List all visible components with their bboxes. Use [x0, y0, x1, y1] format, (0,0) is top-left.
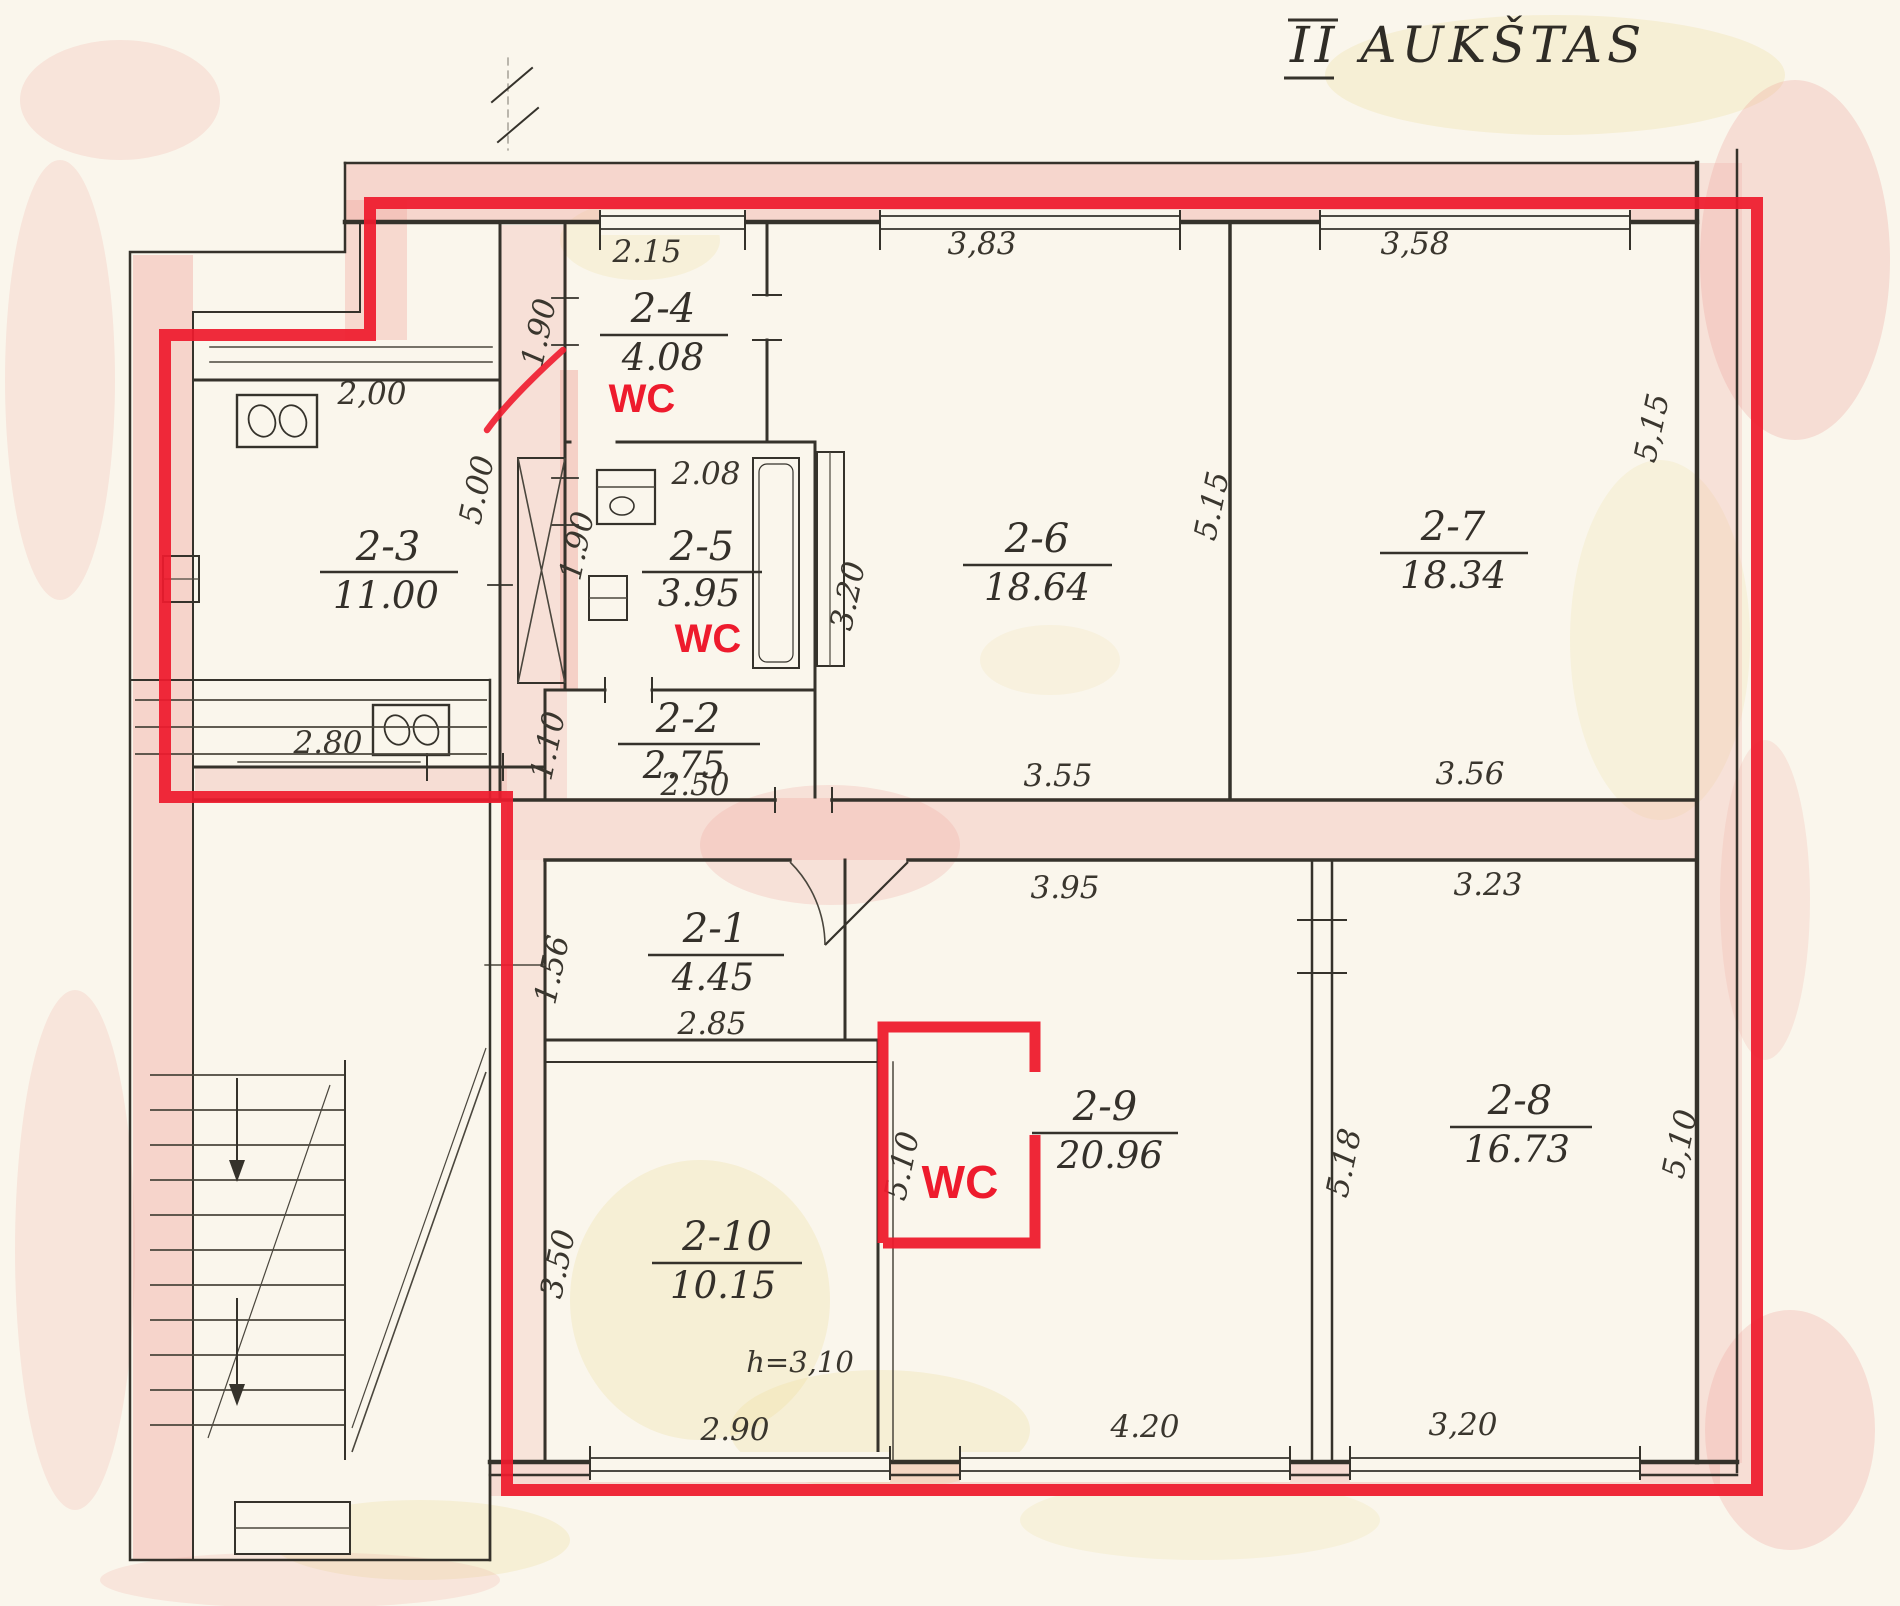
- bath-outer: [753, 458, 799, 668]
- bath-inner: [759, 464, 793, 662]
- room-id: 2-6: [1004, 516, 1069, 562]
- dim-below-2-3: 2.80: [292, 725, 362, 761]
- stair-stringer: [352, 1072, 486, 1452]
- dim-left-2-3: 5.00: [452, 452, 502, 527]
- room-label-2-6: 2-6 18.64: [963, 516, 1112, 609]
- dim-kitchen: 2,00: [336, 376, 406, 412]
- wash-blotch: [700, 785, 960, 905]
- wash-blotch: [1720, 740, 1810, 1060]
- page-title: II AUKŠTAS: [1289, 15, 1646, 74]
- room-label-2-5: 2-5 3.95: [642, 524, 762, 615]
- dim-below-2-1: 2.85: [676, 1006, 746, 1042]
- room-label-2-7: 2-7 18.34: [1380, 504, 1528, 597]
- wash-corridor-main: [507, 798, 1699, 860]
- floorplan-drawing: 2.15 1.90 2,00 5.00 2.08 1.90 3,83 3.20 …: [0, 0, 1900, 1606]
- wc-label-2-9: WC: [922, 1156, 999, 1208]
- wall-break-tick: [492, 68, 532, 102]
- wall-step-inner: [193, 225, 360, 312]
- scanned-floorplan-page: 2.15 1.90 2,00 5.00 2.08 1.90 3,83 3.20 …: [0, 0, 1900, 1606]
- room-id: 2-7: [1420, 504, 1486, 550]
- room-id: 2-2: [655, 696, 720, 742]
- dim-top-2-9: 3.95: [1030, 870, 1099, 906]
- room-area: 11.00: [333, 574, 439, 617]
- window-gap: [1350, 1452, 1640, 1482]
- dim-win-2-4: 2.15: [611, 234, 681, 270]
- dim-height-note: h=3,10: [746, 1345, 854, 1379]
- room-id: 2-1: [682, 906, 747, 952]
- window-gap: [1320, 210, 1630, 235]
- windows: [235, 210, 1640, 1554]
- stove-burner: [275, 402, 310, 441]
- room-area: 3.95: [658, 572, 740, 615]
- dim-below-2-7: 3.56: [1435, 756, 1504, 792]
- room-label-2-1: 2-1 4.45: [648, 906, 784, 999]
- room-id: 2-4: [630, 286, 695, 332]
- room-label-2-8: 2-8 16.73: [1450, 1078, 1592, 1171]
- dim-below-2-6: 3.55: [1023, 758, 1092, 794]
- dim-top-2-5: 2.08: [670, 456, 740, 492]
- wash-blotch: [15, 990, 135, 1510]
- room-label-2-2: 2-2 2.75: [618, 696, 760, 787]
- room-id: 2-3: [355, 524, 420, 570]
- stove-burner: [381, 712, 414, 748]
- stain: [980, 625, 1120, 695]
- sink-bowl: [610, 497, 634, 515]
- window-gap: [880, 210, 1180, 235]
- dim-right-515: 5,15: [1627, 390, 1677, 465]
- room-area: 4.08: [621, 336, 704, 379]
- room-area: 4.45: [671, 956, 754, 999]
- room-id: 2-9: [1072, 1084, 1137, 1130]
- room-area: 10.15: [670, 1264, 776, 1307]
- door-tick: [605, 678, 652, 702]
- dim-below-2-8: 3,20: [1428, 1407, 1497, 1443]
- window-gap: [960, 1452, 1290, 1482]
- dim-below-2-9: 4.20: [1109, 1409, 1179, 1445]
- room-label-2-4: 2-4 4.08: [600, 286, 728, 379]
- stair-arrow-head: [229, 1160, 245, 1182]
- room-area: 2.75: [642, 744, 725, 787]
- stove-burner: [244, 402, 279, 441]
- dim-below-2-10: 2.90: [699, 1412, 769, 1448]
- room-area: 18.34: [1400, 554, 1506, 597]
- room-area: 20.96: [1056, 1134, 1163, 1177]
- dim-win-2-6: 3,83: [947, 226, 1016, 262]
- wash-blotch: [5, 160, 115, 600]
- dim-mid-518: 5.18: [1319, 1125, 1369, 1200]
- wash-blotch: [20, 40, 220, 160]
- room-id: 2-10: [681, 1214, 772, 1260]
- room-area: 18.64: [984, 566, 1090, 609]
- dim-top-2-8: 3.23: [1453, 867, 1522, 903]
- pink-wash: [5, 40, 1890, 1606]
- wc-label-2-4: WC: [609, 377, 676, 421]
- wc-label-2-5: WC: [675, 617, 742, 661]
- door-tick: [753, 295, 781, 340]
- wall-break-tick: [498, 108, 538, 142]
- room-label-2-9: 2-9 20.96: [1032, 1084, 1178, 1177]
- stove-burner: [410, 712, 443, 748]
- stair-handrail: [208, 1085, 330, 1438]
- dim-tick: [1298, 920, 1346, 973]
- stair-stringer: [352, 1048, 486, 1428]
- room-id: 2-5: [669, 524, 734, 570]
- wash-blotch: [1700, 80, 1890, 440]
- stair-arrow-head: [229, 1384, 245, 1406]
- window-gap: [590, 1452, 890, 1482]
- dim-win-2-7: 3,58: [1380, 226, 1449, 262]
- room-label-2-3: 2-3 11.00: [320, 524, 458, 617]
- window-gap: [600, 210, 745, 235]
- wash-blotch: [1705, 1310, 1875, 1550]
- room-area: 16.73: [1464, 1128, 1570, 1171]
- room-id: 2-8: [1487, 1078, 1552, 1124]
- title-block: II AUKŠTAS: [1284, 15, 1646, 78]
- dim-left-2-6: 3.20: [823, 558, 873, 633]
